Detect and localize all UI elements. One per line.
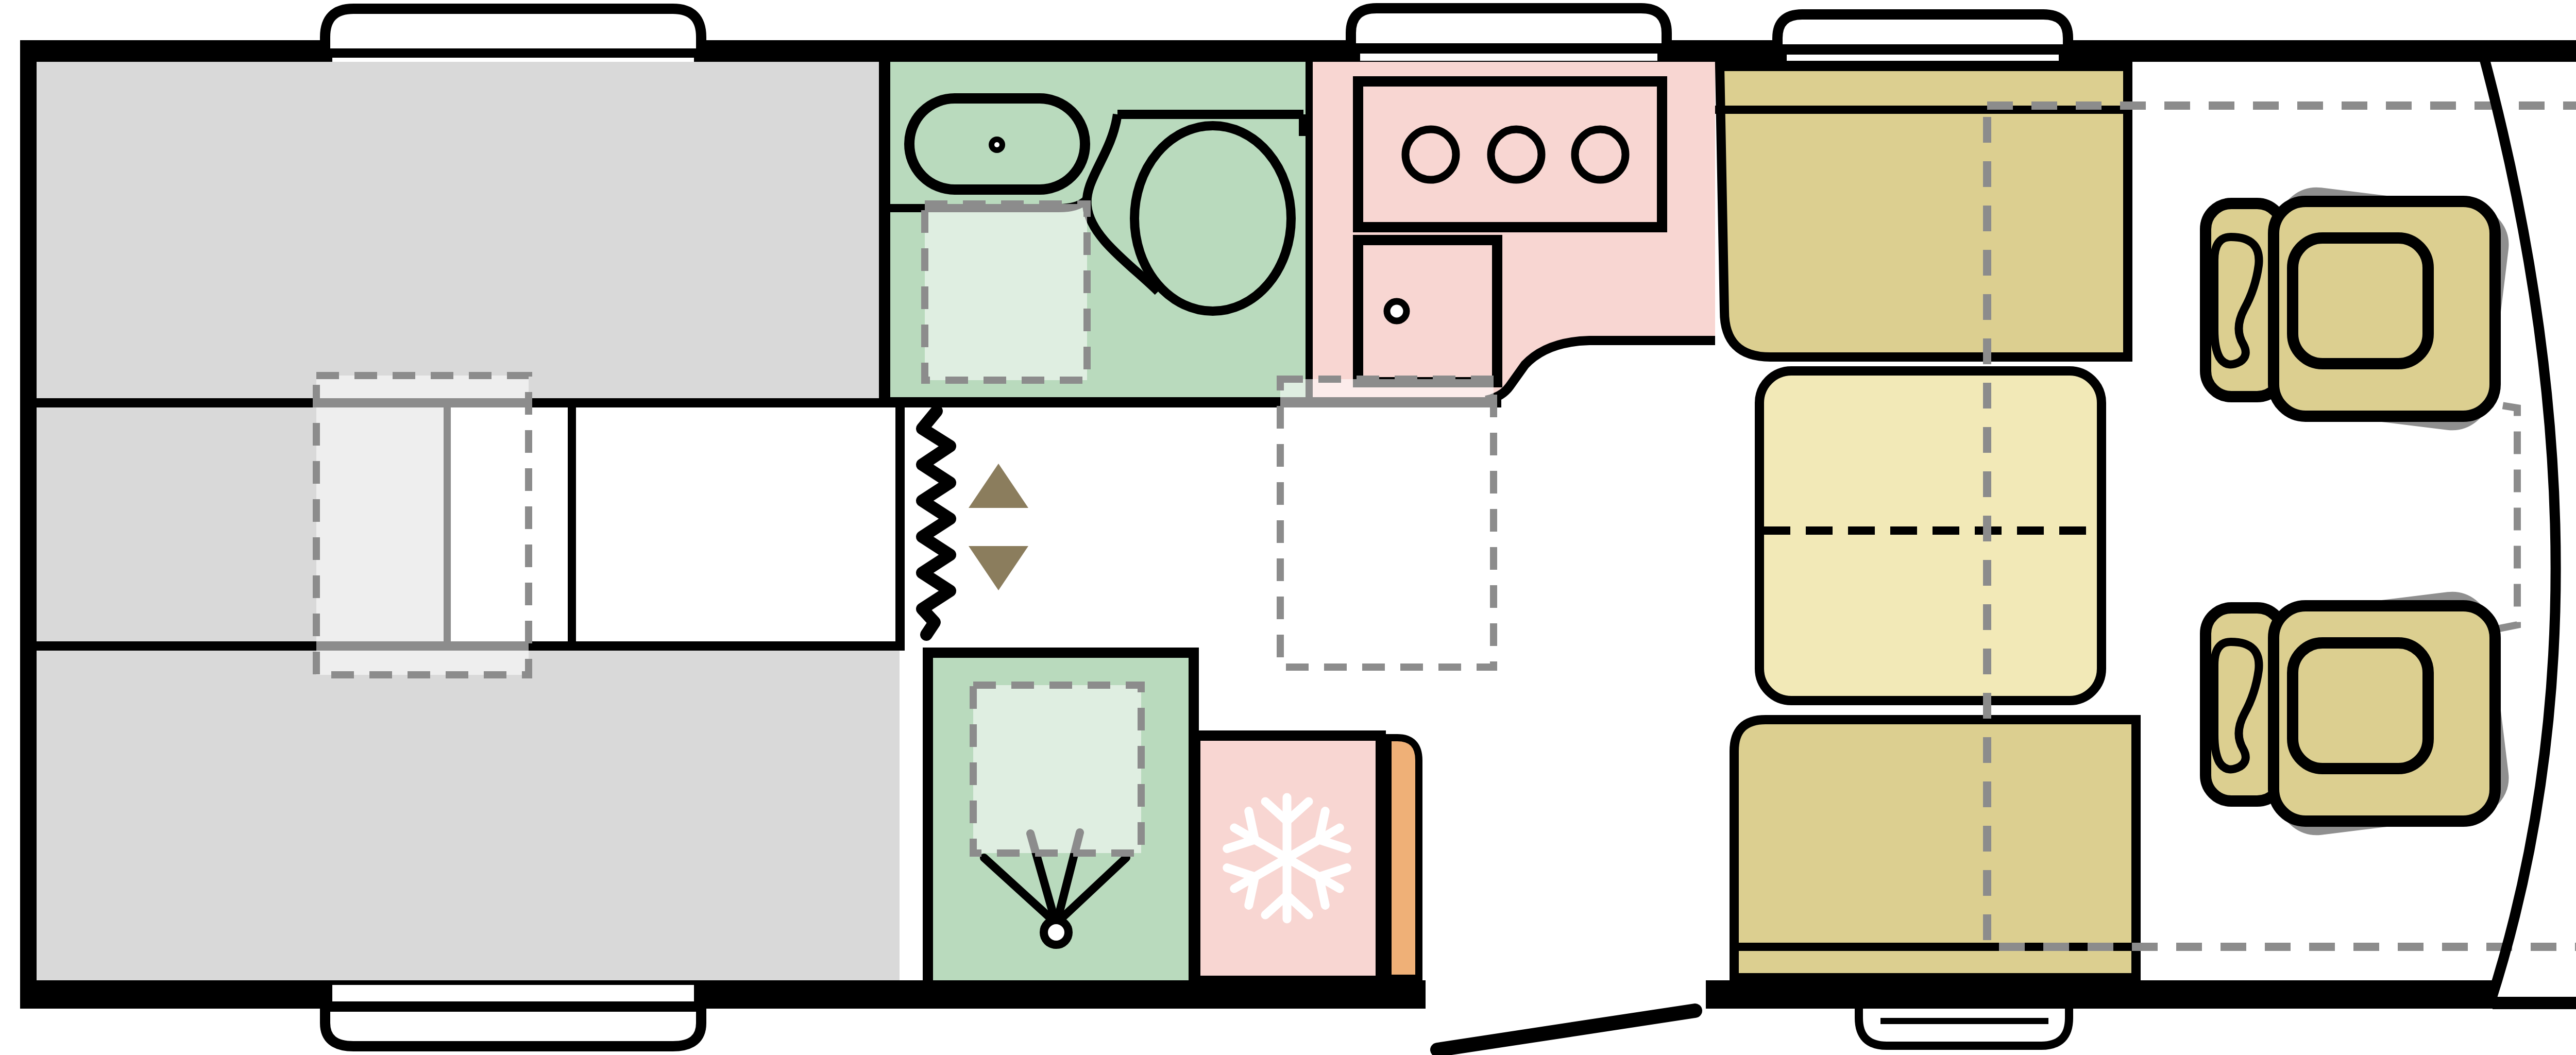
roof-vent-kitchen-slot — [1360, 54, 1657, 61]
bed-top-section — [37, 61, 879, 398]
dinette-bench-top-backline — [1715, 106, 2132, 114]
seat-pad — [2293, 238, 2428, 364]
kitchen-end-trim — [1388, 738, 1419, 978]
roof-vent-dinette-slot — [1787, 55, 2059, 61]
dinette-bench-bottom — [1734, 720, 2136, 978]
sink-tap — [1387, 301, 1406, 321]
rear-bed-hatch-outline — [316, 376, 529, 675]
rear-wall — [20, 40, 37, 1009]
roof-vent-rear-slot — [332, 58, 694, 62]
awning-rail-bottom — [325, 1007, 701, 1046]
bed-bottom-section — [37, 651, 900, 980]
awning-rail-bottom-slot — [332, 985, 694, 1001]
basin-tap-center — [994, 142, 999, 147]
washroom-left-wall — [879, 61, 890, 398]
dinette — [1715, 66, 2140, 978]
floorplan-svg — [0, 0, 2576, 1055]
roof-vent-kitchen — [1351, 8, 1667, 48]
cab-seat-icon — [2206, 189, 2507, 429]
dinette-table — [1759, 371, 2102, 701]
shower-tray-outline — [973, 685, 1141, 853]
fridge — [1195, 736, 1419, 981]
walkway-right-wall — [895, 398, 905, 651]
walkway-left-wall — [568, 398, 576, 651]
washroom-right-wall — [1306, 61, 1313, 398]
shower-head — [1044, 920, 1069, 945]
bottom-side-wall-left — [20, 980, 1426, 1009]
roof-vent-rear — [325, 9, 701, 54]
corridor-bed-outline — [1280, 379, 1494, 667]
bottom-side-wall-right — [1706, 980, 2494, 1009]
seat-pad — [2293, 643, 2428, 769]
floorplan-stage — [0, 0, 2576, 1055]
cab-seat-icon — [2206, 593, 2507, 833]
roof-vent-dinette — [1777, 14, 2068, 49]
washroom-shower-tray-outline — [925, 204, 1087, 380]
dinette-bench-bottom-frontline — [1730, 943, 2140, 951]
